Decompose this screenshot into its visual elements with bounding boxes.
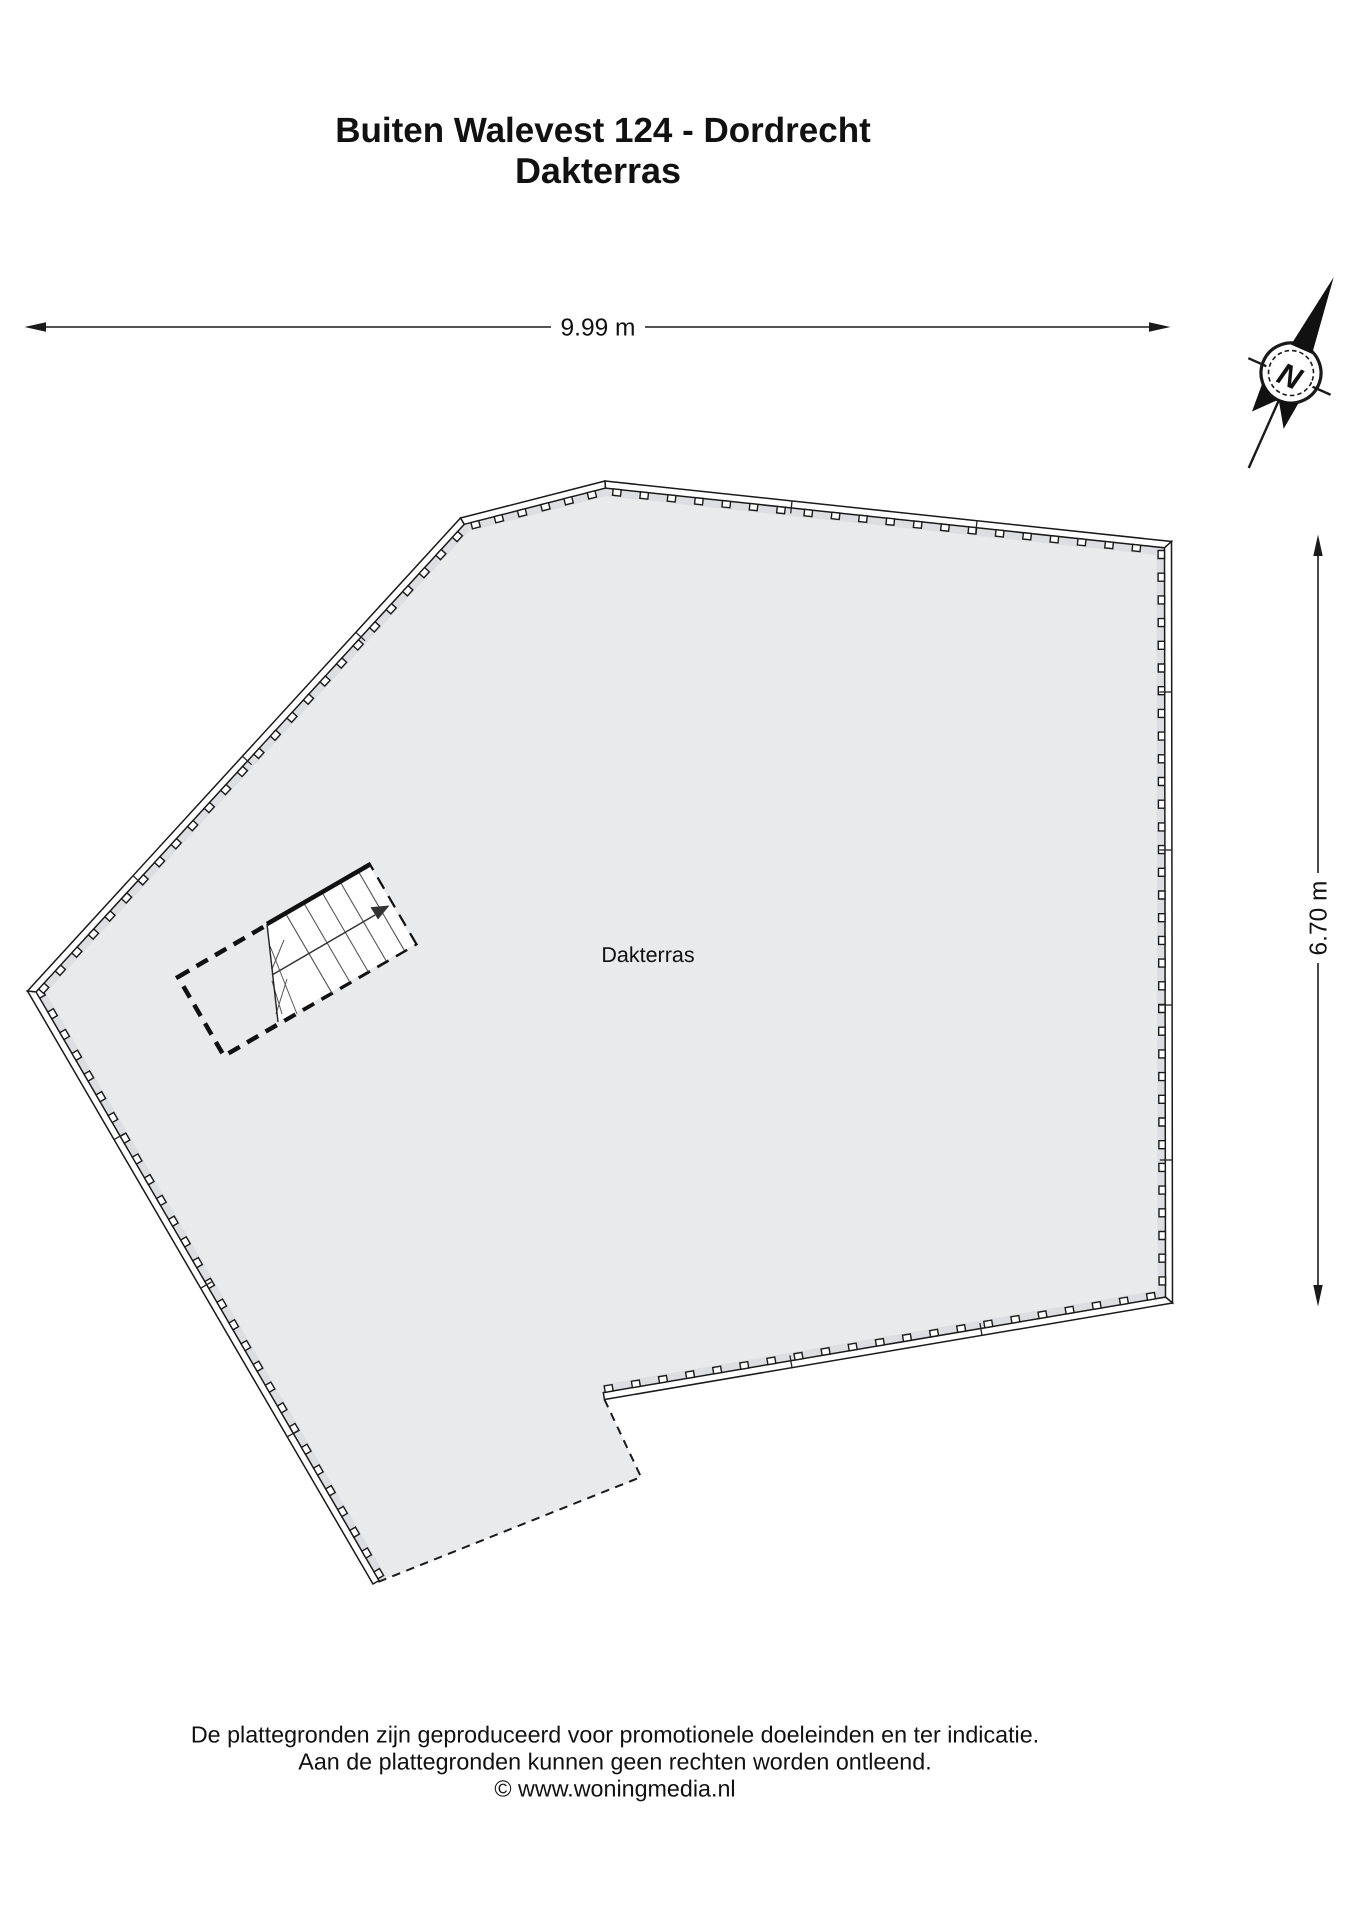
svg-text:Buiten Walevest 124 - Dordrech: Buiten Walevest 124 - Dordrecht xyxy=(335,111,871,150)
svg-text:Dakterras: Dakterras xyxy=(601,943,694,967)
svg-text:6.70 m: 6.70 m xyxy=(1306,881,1333,956)
svg-text:Dakterras: Dakterras xyxy=(515,150,681,191)
svg-text:9.99 m: 9.99 m xyxy=(561,315,636,342)
svg-text:De plattegronden zijn geproduc: De plattegronden zijn geproduceerd voor … xyxy=(191,1722,1039,1748)
svg-text:Aan de plattegronden kunnen ge: Aan de plattegronden kunnen geen rechten… xyxy=(298,1749,931,1775)
svg-text:© www.woningmedia.nl: © www.woningmedia.nl xyxy=(494,1776,735,1802)
